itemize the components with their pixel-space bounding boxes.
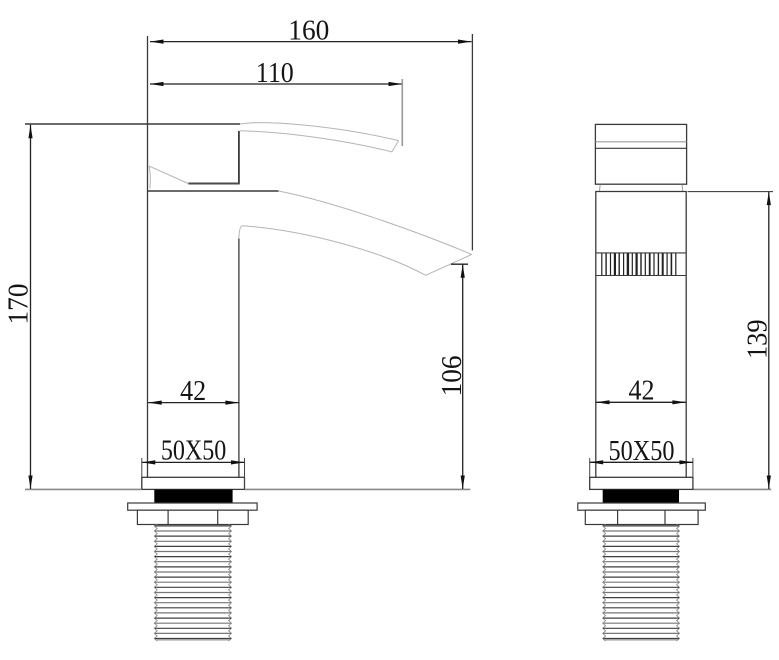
svg-text:50X50: 50X50 — [161, 434, 227, 466]
svg-text:139: 139 — [742, 320, 774, 360]
svg-text:50X50: 50X50 — [609, 435, 675, 467]
svg-text:160: 160 — [288, 14, 329, 46]
svg-text:42: 42 — [629, 375, 655, 407]
svg-text:170: 170 — [3, 284, 35, 325]
svg-text:106: 106 — [436, 355, 468, 396]
svg-text:42: 42 — [180, 375, 206, 407]
svg-text:110: 110 — [256, 57, 294, 89]
